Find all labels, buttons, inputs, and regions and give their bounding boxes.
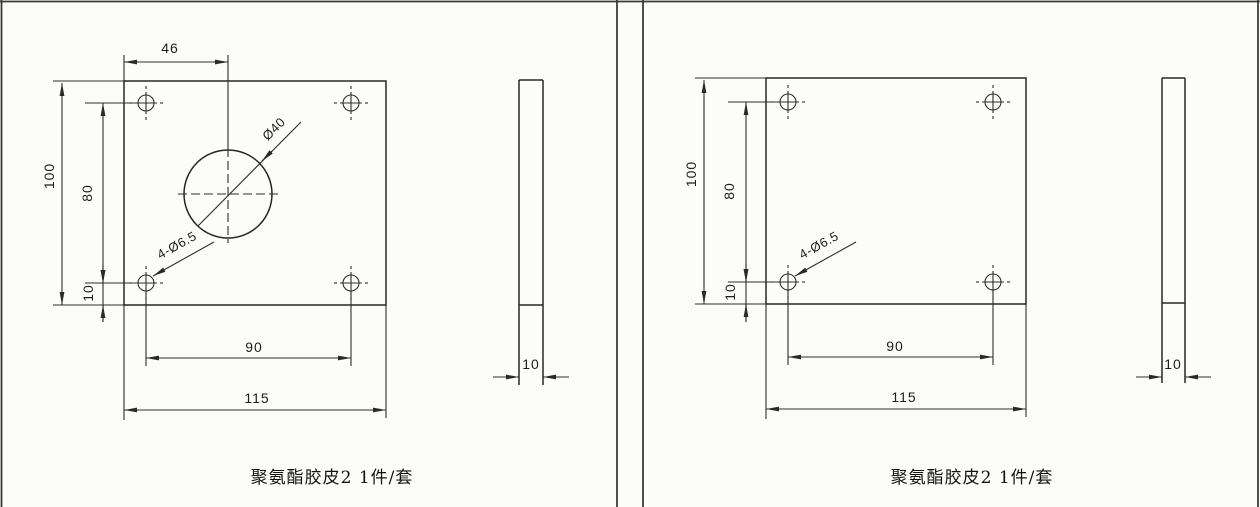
dim-90-label: 90 (245, 339, 263, 355)
left-drawing: 46 100 80 10 (41, 40, 569, 488)
dim-80-label: 80 (79, 184, 95, 202)
hole-top-right (976, 85, 1010, 119)
dimension-thickness: 10 (1136, 356, 1211, 377)
leader-corner-holes: 4-Ø6.5 (153, 228, 214, 276)
technical-drawing-canvas: 46 100 80 10 (0, 0, 1260, 507)
dim-46-label: 46 (161, 40, 179, 56)
left-side-view: 10 (493, 80, 569, 385)
dimension-80: 80 (79, 103, 138, 283)
dimension-100: 100 (41, 83, 62, 305)
panel-borders (0, 0, 1260, 507)
dim-10-edge-label: 10 (722, 283, 738, 301)
dim-80-label: 80 (721, 182, 737, 200)
dimension-10-edge: 10 (80, 265, 103, 322)
dim-100-label: 100 (683, 161, 699, 187)
leader-corner-holes-label: 4-Ø6.5 (796, 228, 841, 262)
dimension-46: 46 (124, 40, 228, 62)
leader-corner-holes-label: 4-Ø6.5 (154, 228, 199, 262)
dimension-115: 115 (124, 390, 386, 410)
dimension-90: 90 (788, 290, 993, 365)
right-front-view: 100 80 10 90 (683, 78, 1026, 419)
dimension-100: 100 (683, 80, 704, 304)
leader-corner-holes: 4-Ø6.5 (795, 228, 856, 276)
dimension-80: 80 (721, 102, 780, 282)
dimension-115: 115 (766, 389, 1026, 409)
leader-center-hole: Ø40 (198, 114, 301, 226)
right-side-view: 10 (1136, 78, 1211, 383)
left-caption: 聚氨酯胶皮2 1件/套 (251, 468, 414, 488)
dim-10-edge-label: 10 (80, 284, 96, 302)
dim-115-label: 115 (891, 389, 916, 405)
dim-thickness-label: 10 (522, 356, 540, 372)
dimension-90: 90 (146, 291, 351, 366)
drawing-sheet: 46 100 80 10 (0, 0, 1260, 507)
dim-90-label: 90 (886, 338, 904, 354)
right-drawing: 100 80 10 90 (683, 78, 1211, 488)
plate-outline (124, 81, 386, 305)
hole-top-right (334, 86, 368, 120)
dim-100-label: 100 (41, 163, 57, 189)
dimension-10-edge: 10 (722, 264, 746, 322)
left-front-view: 46 100 80 10 (41, 40, 386, 420)
right-caption: 聚氨酯胶皮2 1件/套 (891, 468, 1054, 488)
dim-thickness-label: 10 (1164, 356, 1182, 372)
dimension-thickness: 10 (493, 356, 569, 377)
dim-115-label: 115 (244, 390, 269, 406)
